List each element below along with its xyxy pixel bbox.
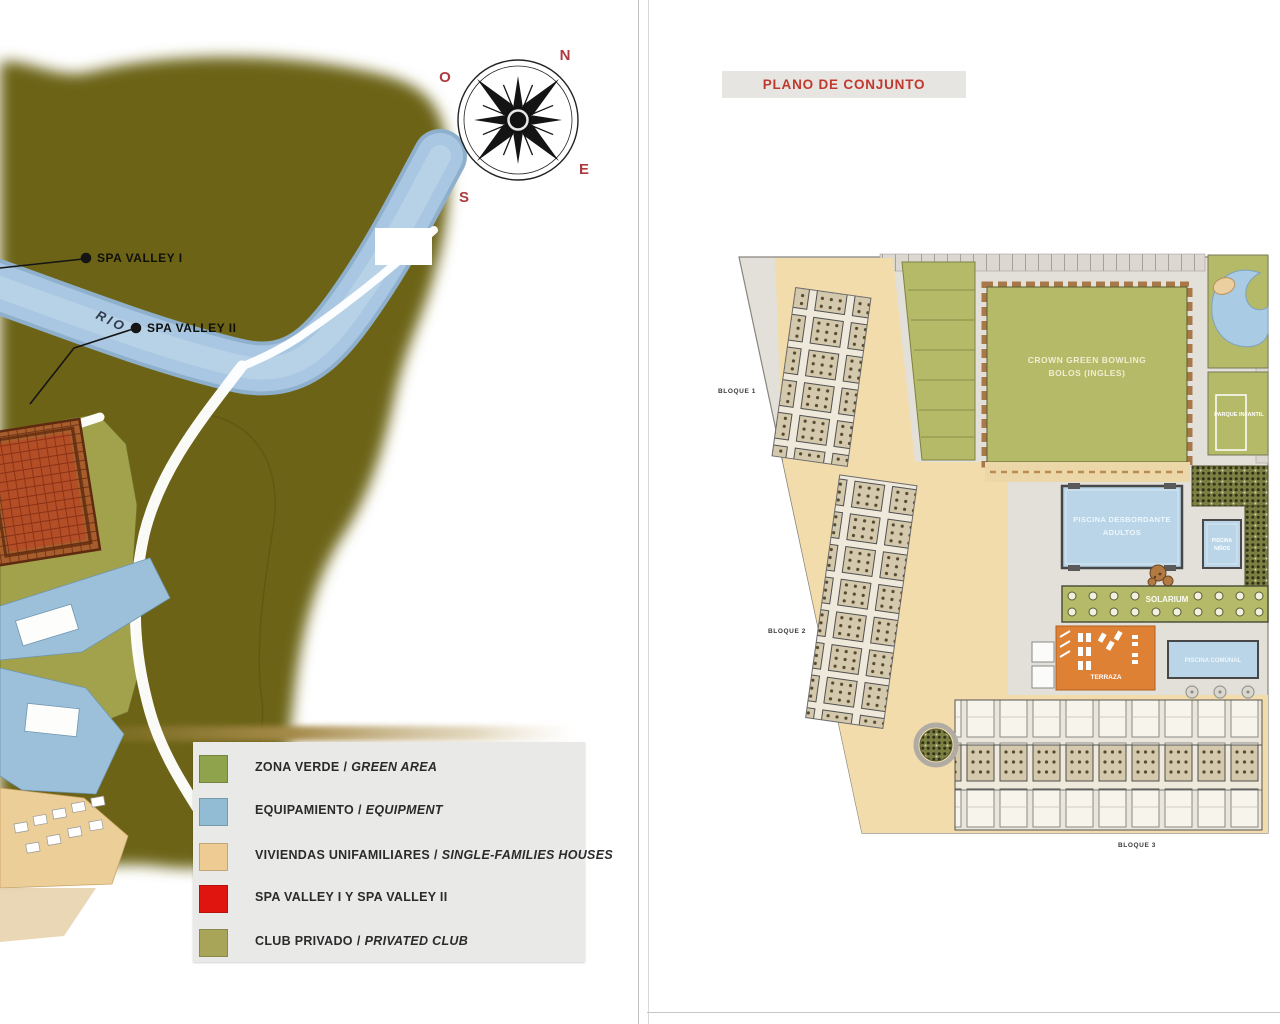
legend-sep: / bbox=[358, 803, 362, 817]
bowling-label-1: CROWN GREEN BOWLING bbox=[1028, 355, 1147, 365]
adult-pool-label-1: PISCINA DESBORDANTE bbox=[1073, 515, 1171, 524]
site-plan: CROWN GREEN BOWLING BOLOS (INGLES) PARQU… bbox=[700, 245, 1280, 870]
compass-o: O bbox=[439, 69, 451, 86]
legend-label-en: EQUIPMENT bbox=[366, 803, 443, 817]
legend-label-en: GREEN AREA bbox=[351, 760, 437, 774]
legend-label-en: PRIVATED CLUB bbox=[365, 934, 468, 948]
terrace-label: TERRAZA bbox=[1090, 674, 1121, 681]
legend-label-es: CLUB PRIVADO bbox=[255, 934, 353, 948]
legend-swatch-green bbox=[199, 755, 228, 783]
bloque-2-label: BLOQUE 2 bbox=[768, 628, 806, 635]
kids-pool: PISCINA NIÑOS bbox=[1203, 520, 1241, 568]
solarium-strip: SOLARIUM bbox=[1062, 586, 1268, 622]
page-divider-line bbox=[638, 0, 639, 1024]
pool-terrace-strip bbox=[985, 462, 1190, 482]
map-legend: ZONA VERDE/GREEN AREA EQUIPAMIENTO/EQUIP… bbox=[193, 742, 585, 962]
bowling-green: CROWN GREEN BOWLING BOLOS (INGLES) bbox=[984, 284, 1190, 465]
compass-rose: N O E S bbox=[439, 47, 589, 206]
planting-grid-top bbox=[1192, 466, 1268, 506]
lagoon-garden bbox=[1208, 255, 1268, 368]
legend-swatch-red bbox=[199, 885, 228, 913]
spa-valley-2-dot bbox=[132, 324, 141, 333]
solarium-label: SOLARIUM bbox=[1146, 595, 1189, 604]
page-title-bar: PLANO DE CONJUNTO bbox=[722, 71, 966, 98]
legend-row-spa-valley: SPA VALLEY I Y SPA VALLEY II bbox=[193, 884, 585, 914]
legend-label-es: EQUIPAMIENTO bbox=[255, 803, 354, 817]
spa-valley-1-dot bbox=[82, 254, 91, 263]
roundabout bbox=[916, 725, 956, 765]
legend-swatch-tan bbox=[199, 843, 228, 871]
compass-e: E bbox=[579, 161, 589, 178]
compass-s: S bbox=[459, 189, 469, 206]
legend-label-es: SPA VALLEY I Y SPA VALLEY II bbox=[255, 890, 447, 904]
kids-pool-label-2: NIÑOS bbox=[1214, 545, 1231, 552]
adult-pool: PISCINA DESBORDANTE ADULTOS bbox=[1062, 483, 1182, 571]
legend-label-es: ZONA VERDE bbox=[255, 760, 340, 774]
legend-row-equipment: EQUIPAMIENTO/EQUIPMENT bbox=[193, 797, 585, 827]
brochure-spread: RIO bbox=[0, 0, 1280, 1024]
bloque-1-label: BLOQUE 1 bbox=[718, 388, 756, 395]
bowling-label-2: BOLOS (INGLES) bbox=[1049, 368, 1126, 378]
legend-sep: / bbox=[344, 760, 348, 774]
planting-grid-right bbox=[1245, 506, 1268, 590]
playground: PARQUE INFANTIL bbox=[1208, 372, 1268, 455]
blank-label-box bbox=[375, 228, 432, 265]
spa-valley-2-label: SPA VALLEY II bbox=[147, 321, 236, 335]
legend-sep: / bbox=[357, 934, 361, 948]
page-title: PLANO DE CONJUNTO bbox=[763, 77, 926, 92]
legend-swatch-blue bbox=[199, 798, 228, 826]
legend-swatch-olive bbox=[199, 929, 228, 957]
kids-pool-label-1: PISCINA bbox=[1212, 538, 1233, 544]
pool-tables bbox=[1186, 686, 1254, 698]
compass-n: N bbox=[560, 47, 571, 64]
bottom-rule bbox=[647, 1012, 1280, 1013]
bloque-3-label: BLOQUE 3 bbox=[1118, 842, 1156, 849]
terrain-streak bbox=[60, 726, 580, 741]
spa-valley-1-label: SPA VALLEY I bbox=[97, 251, 183, 265]
page-edge-line bbox=[648, 0, 649, 1024]
orange-terrace: TERRAZA bbox=[1056, 626, 1155, 690]
legend-row-green-area: ZONA VERDE/GREEN AREA bbox=[193, 754, 585, 784]
legend-row-private-club: CLUB PRIVADO/PRIVATED CLUB bbox=[193, 928, 585, 958]
legend-row-houses: VIVIENDAS UNIFAMILIARES/SINGLE-FAMILIES … bbox=[193, 842, 585, 872]
communal-pool-label: PISCINA COMUNAL bbox=[1185, 658, 1242, 664]
playground-label: PARQUE INFANTIL bbox=[1214, 412, 1264, 418]
legend-label-en: SINGLE-FAMILIES HOUSES bbox=[442, 848, 613, 862]
adult-pool-label-2: ADULTOS bbox=[1103, 528, 1141, 537]
legend-label-es: VIVIENDAS UNIFAMILIARES bbox=[255, 848, 430, 862]
bloque-3-units bbox=[955, 700, 1262, 830]
legend-sep: / bbox=[434, 848, 438, 862]
